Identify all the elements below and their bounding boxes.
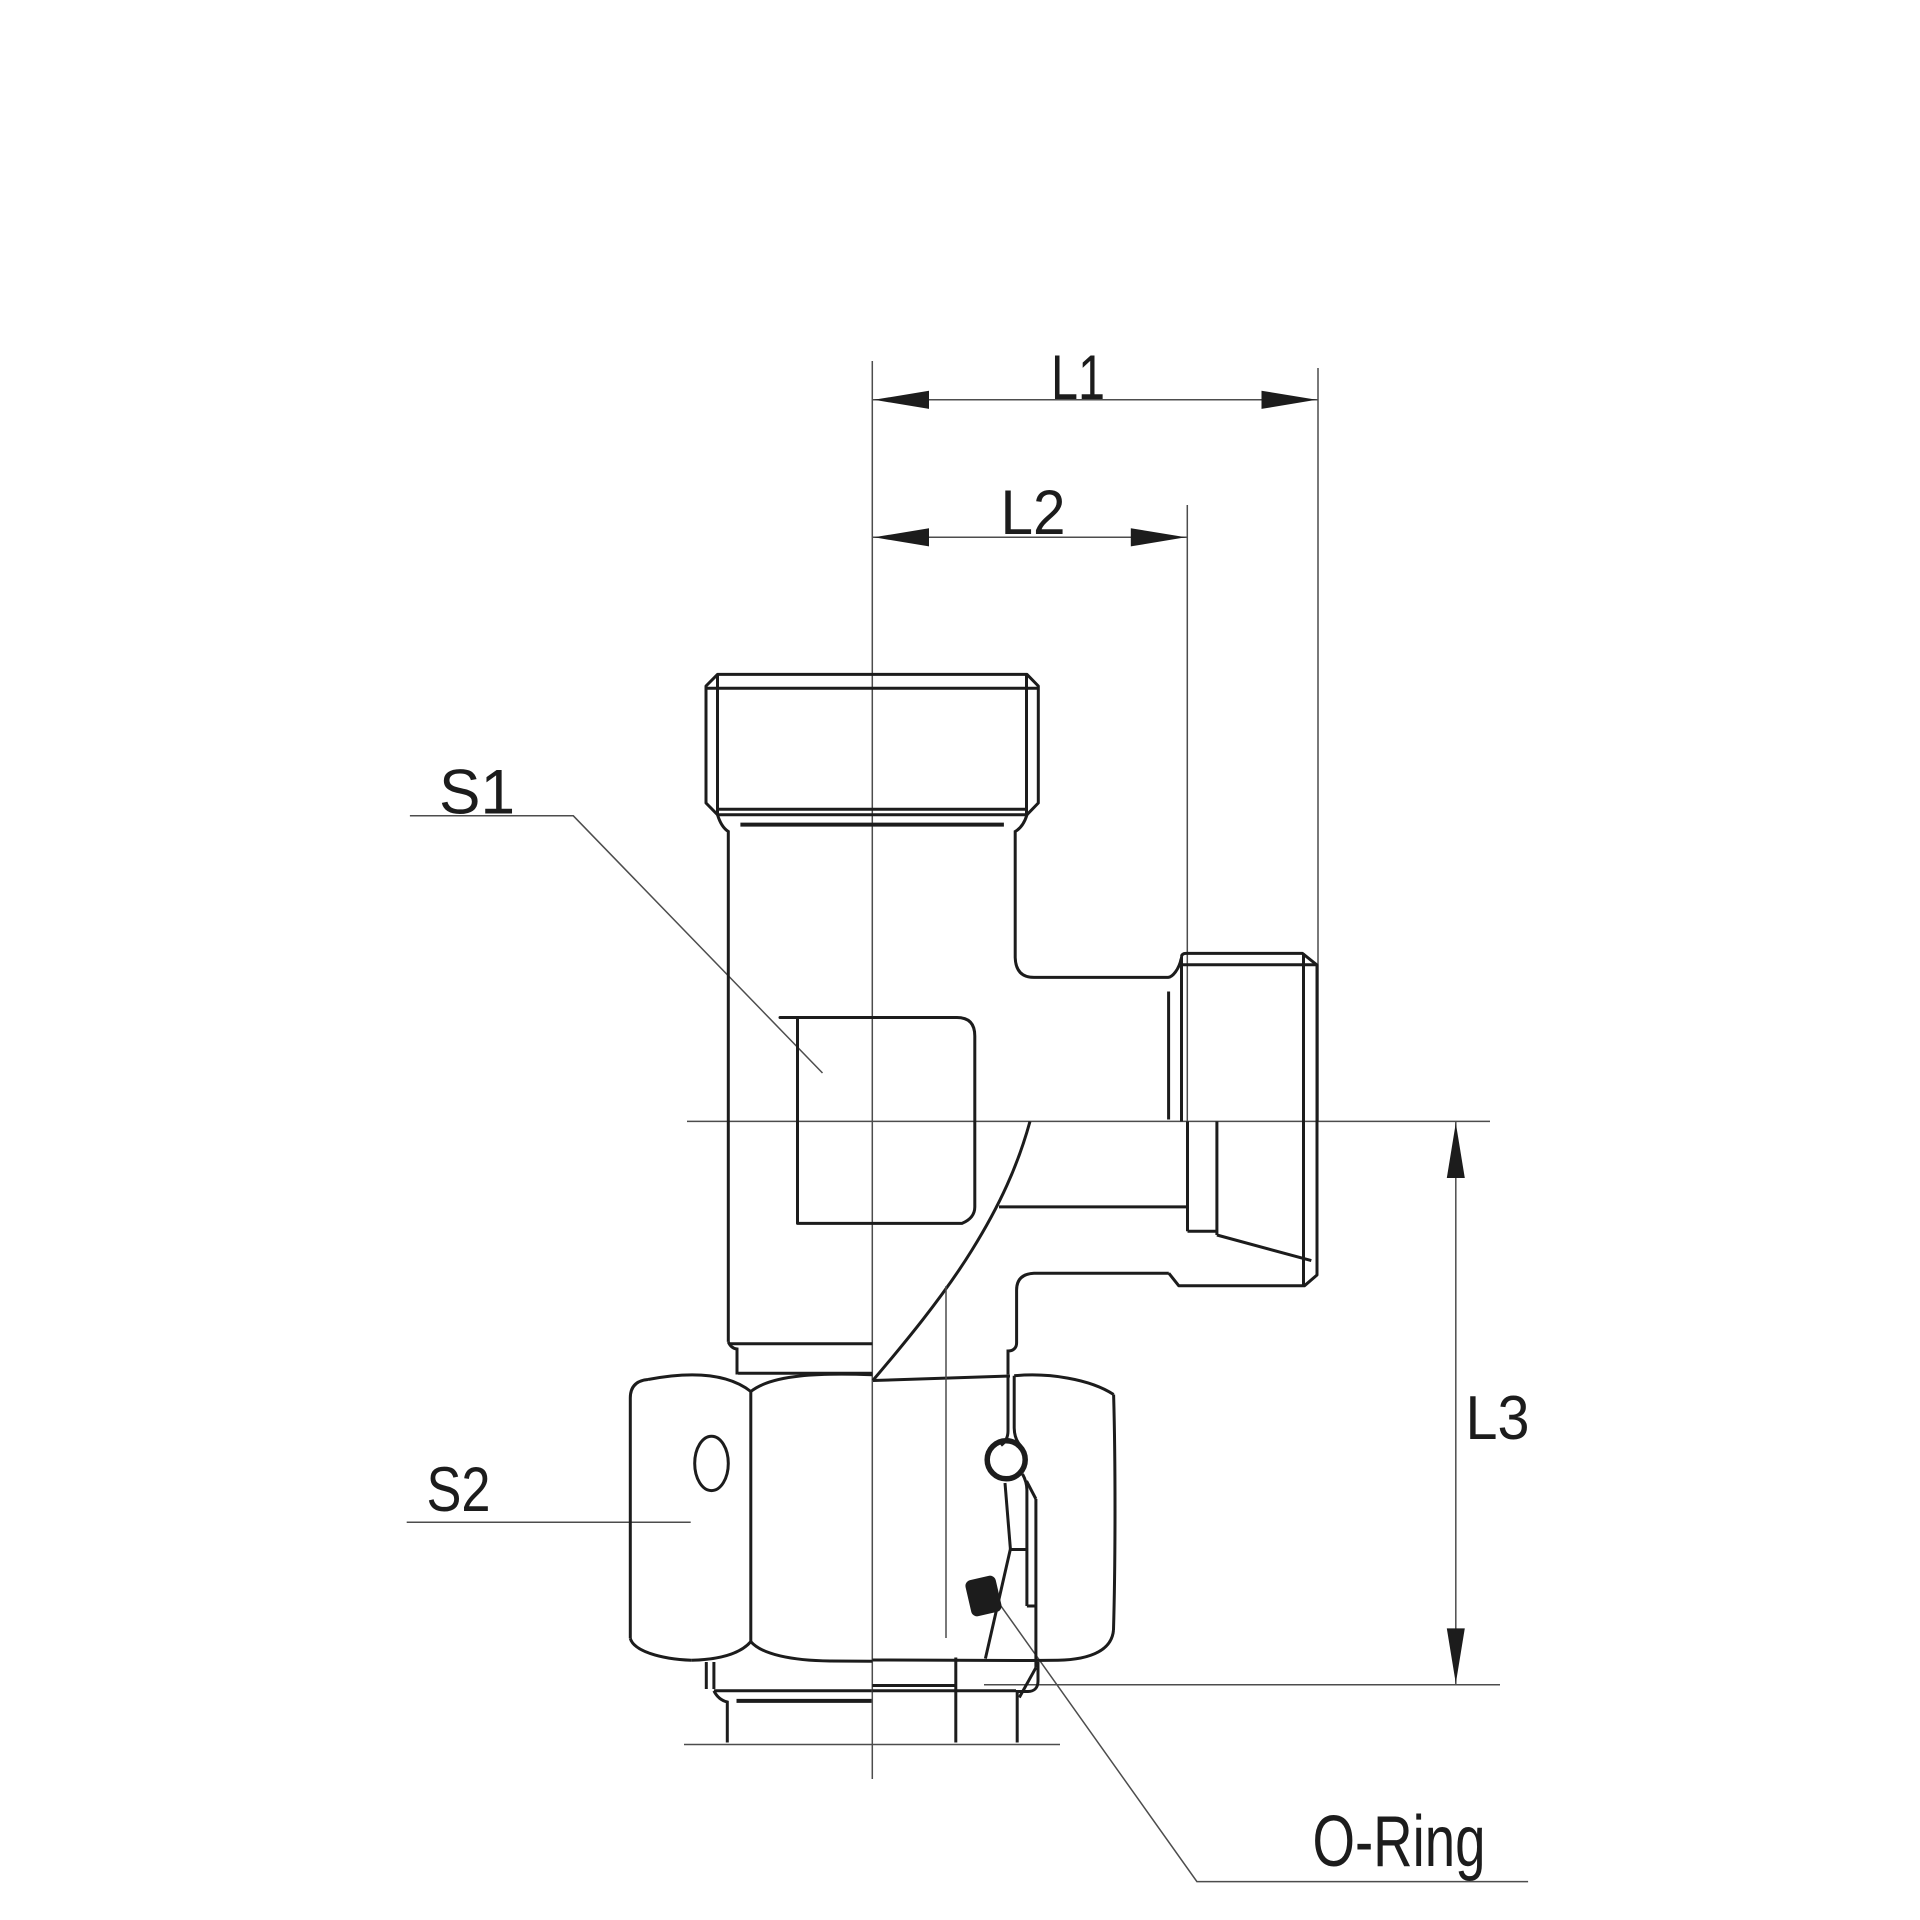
svg-text:L1: L1 (1051, 343, 1105, 413)
svg-text:L2: L2 (1001, 478, 1066, 548)
svg-text:S1: S1 (439, 758, 515, 828)
svg-text:O-Ring: O-Ring (1313, 1802, 1486, 1882)
svg-text:S2: S2 (427, 1455, 491, 1525)
svg-text:L3: L3 (1466, 1384, 1530, 1453)
